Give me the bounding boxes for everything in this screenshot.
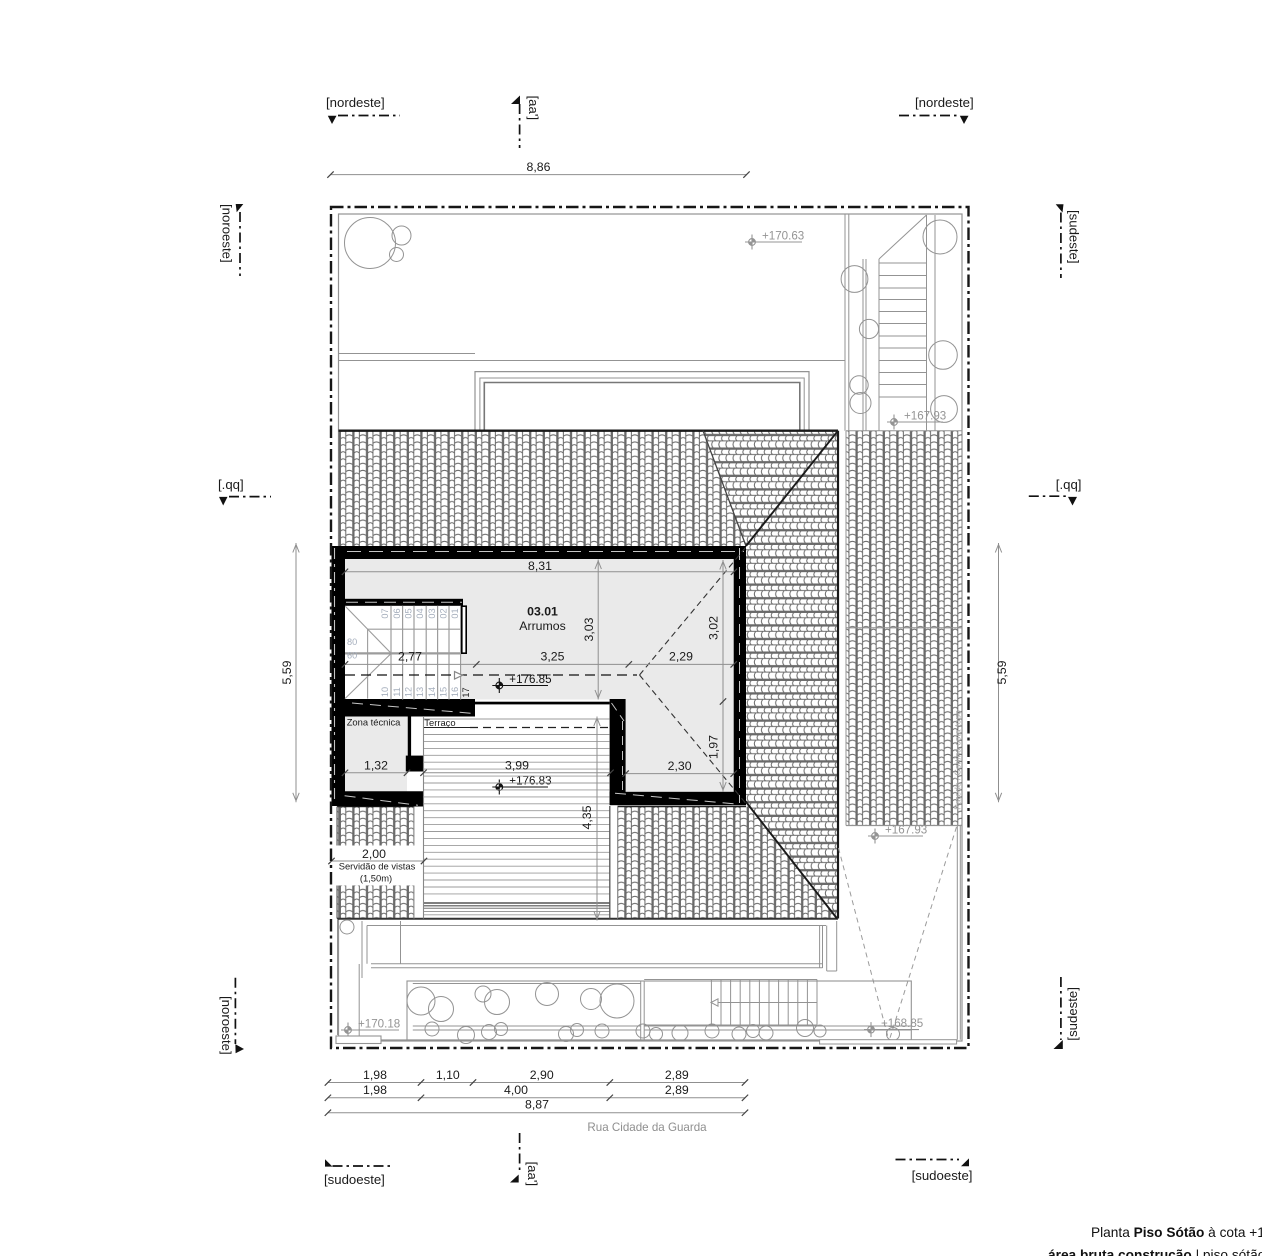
svg-text:03.01: 03.01 <box>527 605 558 619</box>
svg-text:11: 11 <box>392 687 402 697</box>
svg-text:+167.93: +167.93 <box>904 410 946 423</box>
svg-text:01: 01 <box>450 608 460 618</box>
svg-text:2,89: 2,89 <box>665 1083 689 1097</box>
svg-text:área bruta construção | piso s: área bruta construção | piso sótão = 031 <box>1048 1248 1262 1256</box>
svg-text:1,98: 1,98 <box>363 1083 387 1097</box>
svg-text:1,32: 1,32 <box>364 758 388 772</box>
svg-text:(1,50m): (1,50m) <box>360 873 392 884</box>
svg-text:8,86: 8,86 <box>527 160 551 174</box>
svg-text:+170.63: +170.63 <box>762 230 804 243</box>
svg-text:Planta Piso Sótão à cota +178.: Planta Piso Sótão à cota +178. <box>1091 1225 1262 1240</box>
svg-text:8,87: 8,87 <box>525 1098 549 1112</box>
svg-text:14: 14 <box>427 687 437 697</box>
svg-text:3,99: 3,99 <box>505 758 529 772</box>
svg-text:Arrumos: Arrumos <box>519 619 565 633</box>
svg-text:10: 10 <box>380 687 390 697</box>
svg-text:12: 12 <box>403 687 413 697</box>
svg-text:02: 02 <box>438 608 448 618</box>
svg-text:[nordeste]: [nordeste] <box>915 95 974 110</box>
svg-text:13: 13 <box>415 687 425 697</box>
svg-text:Terraço: Terraço <box>424 717 455 728</box>
svg-text:07: 07 <box>380 608 390 618</box>
svg-text:1,10: 1,10 <box>436 1068 460 1082</box>
svg-text:04: 04 <box>415 608 425 618</box>
svg-text:+176.85: +176.85 <box>509 673 551 686</box>
svg-text:[aa']: [aa'] <box>526 96 541 121</box>
svg-text:3,03: 3,03 <box>582 617 596 641</box>
svg-text:3,25: 3,25 <box>541 650 565 664</box>
svg-text:8,31: 8,31 <box>528 559 552 573</box>
svg-text:[aa']: [aa'] <box>525 1162 540 1187</box>
svg-text:[sudeste]: [sudeste] <box>1065 987 1080 1041</box>
svg-text:+167.93: +167.93 <box>885 824 927 837</box>
svg-text:[nordeste]: [nordeste] <box>326 95 385 110</box>
svg-text:2,90: 2,90 <box>530 1068 554 1082</box>
svg-text:[noroeste]: [noroeste] <box>219 996 234 1055</box>
svg-text:[sudoeste]: [sudoeste] <box>324 1172 385 1187</box>
svg-text:[noroeste]: [noroeste] <box>220 204 235 263</box>
svg-text:2,29: 2,29 <box>669 650 693 664</box>
svg-text:+170.18: +170.18 <box>358 1018 400 1031</box>
svg-text:Servidão de vistas: Servidão de vistas <box>339 861 416 872</box>
svg-text:4,35: 4,35 <box>580 805 594 829</box>
svg-text:+168.85: +168.85 <box>881 1017 923 1030</box>
svg-text:[sudeste]: [sudeste] <box>1067 210 1082 264</box>
svg-text:06: 06 <box>392 608 402 618</box>
svg-text:[.qq]: [.qq] <box>218 477 244 492</box>
svg-text:05: 05 <box>403 608 413 618</box>
svg-text:1,98: 1,98 <box>363 1068 387 1082</box>
svg-text:15: 15 <box>438 687 448 697</box>
svg-text:4,00: 4,00 <box>504 1083 528 1097</box>
svg-text:2,00: 2,00 <box>362 847 386 861</box>
svg-text:60: 60 <box>347 651 357 661</box>
svg-text:03: 03 <box>427 608 437 618</box>
svg-text:2,77: 2,77 <box>398 650 422 664</box>
svg-text:5,59: 5,59 <box>995 660 1009 684</box>
svg-text:Parede / Cortina cota-topo: Parede / Cortina cota-topo <box>953 710 963 810</box>
svg-text:[sudoeste]: [sudoeste] <box>912 1168 973 1183</box>
svg-text:[.qq]: [.qq] <box>1056 477 1082 492</box>
svg-text:2,30: 2,30 <box>668 759 692 773</box>
svg-text:17: 17 <box>461 687 471 697</box>
svg-text:Rua Cidade da Guarda: Rua Cidade da Guarda <box>587 1121 707 1134</box>
svg-text:5,59: 5,59 <box>280 660 294 684</box>
svg-text:3,02: 3,02 <box>707 616 721 640</box>
svg-text:16: 16 <box>450 687 460 697</box>
svg-text:Zona técnica: Zona técnica <box>347 717 401 728</box>
svg-text:2,89: 2,89 <box>665 1068 689 1082</box>
svg-text:80: 80 <box>347 637 357 647</box>
svg-text:1,97: 1,97 <box>707 735 721 759</box>
